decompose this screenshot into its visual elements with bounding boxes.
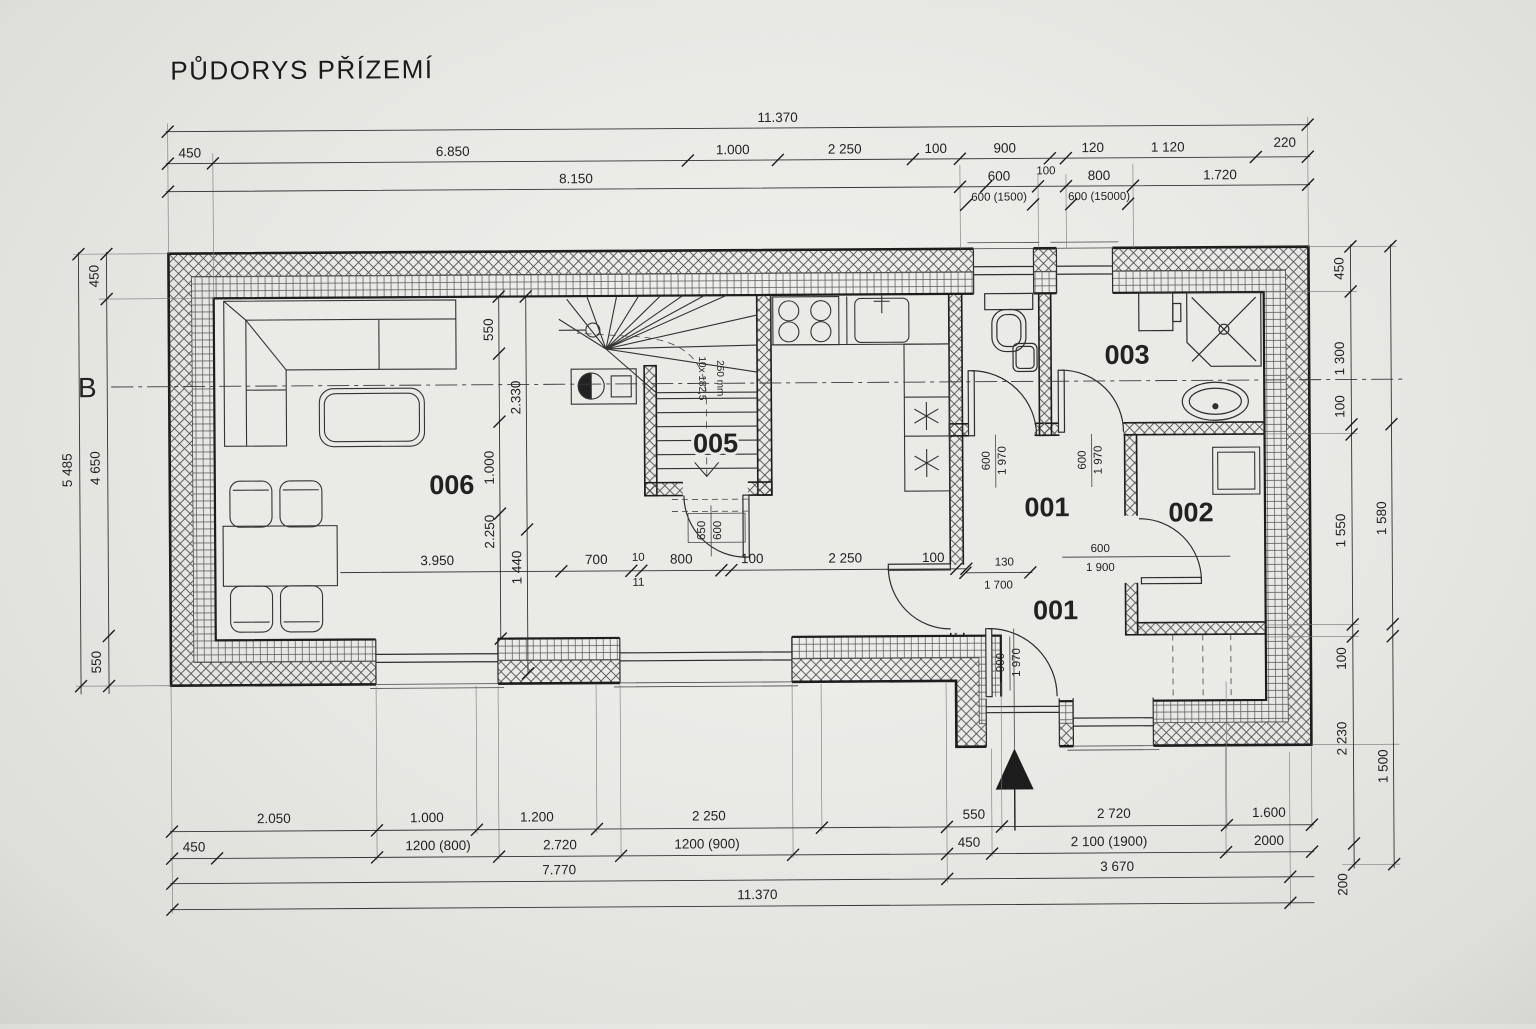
room-label-hall-lower: 001 — [1033, 595, 1078, 625]
window-north-1 — [967, 242, 1039, 295]
wall-wc-bath — [1039, 293, 1052, 435]
wall-stair-left — [644, 366, 657, 496]
dim: 600 — [712, 521, 724, 540]
dim: 900 — [995, 653, 1007, 672]
scanned-drawing-sheet: PŮDORYS PŘÍZEMÍ — [0, 0, 1536, 1029]
bottom-dimensions: 2.050 1.000 1.200 2 250 550 2 720 1.600 … — [166, 805, 1319, 916]
dim: 100 — [1332, 395, 1347, 418]
dim: 1200 (900) — [674, 836, 739, 851]
dim: 1 970 — [1093, 446, 1105, 475]
dim: 600 (1500) — [971, 191, 1027, 203]
dim: 3.950 — [420, 553, 454, 568]
dim: 700 — [585, 552, 608, 567]
dim: 220 — [1273, 135, 1296, 150]
dim: 1 580 — [1374, 501, 1389, 535]
dim: 1 550 — [1333, 514, 1348, 548]
dim: 2.720 — [543, 837, 577, 852]
page-title: PŮDORYS PŘÍZEMÍ — [170, 53, 433, 86]
dim: 1.000 — [482, 451, 497, 485]
dim: 2.250 — [482, 515, 497, 549]
dim: 800 — [670, 551, 693, 566]
room-label-bedroom: 002 — [1168, 497, 1213, 527]
dim: 600 — [981, 451, 993, 470]
stairs-door-opening — [683, 480, 748, 497]
dim: 2 250 — [828, 141, 862, 156]
wall-bedroom-bottom — [1138, 622, 1266, 635]
dim: 1 700 — [984, 580, 1013, 592]
dim: 8.150 — [559, 171, 593, 186]
entry-door-opening — [986, 696, 1059, 748]
dim: 6.850 — [436, 144, 470, 159]
dim: 450 — [183, 839, 206, 854]
dim: 130 — [995, 556, 1014, 568]
dim: 1.200 — [520, 809, 554, 824]
dim: 1 500 — [1375, 749, 1390, 783]
dim: 1 120 — [1151, 139, 1185, 154]
window-entry — [1067, 696, 1159, 751]
dim: 2 230 — [1334, 722, 1349, 756]
dim: 2.050 — [257, 811, 291, 826]
dim: 600 — [1091, 543, 1110, 555]
dim: 2 100 (1900) — [1071, 834, 1148, 849]
dim: 4 650 — [88, 451, 103, 485]
wall-stair-right — [757, 295, 772, 495]
dim: 450 — [958, 835, 981, 850]
dim: 100 — [1334, 647, 1349, 670]
floor-plan: PŮDORYS PŘÍZEMÍ — [0, 0, 1536, 1029]
dim: 1.000 — [716, 142, 750, 157]
dim: 200 — [1335, 873, 1350, 896]
left-dimensions: 450 4 650 550 5 485 — [58, 248, 115, 694]
section-mark: B — [78, 372, 97, 403]
room-label-stairs: 005 — [693, 428, 738, 458]
dim: 3 670 — [1100, 859, 1134, 874]
dim: 600 (15000) — [1068, 191, 1130, 203]
dim: 1 300 — [1332, 342, 1347, 376]
dim: 100 — [741, 551, 764, 566]
dim: 1 900 — [1086, 562, 1115, 574]
dim: 2 720 — [1097, 806, 1131, 821]
dim: 1 970 — [997, 446, 1009, 475]
dim: 100 — [1036, 165, 1055, 177]
dim: 600 — [988, 169, 1011, 184]
room-label-hall-upper: 001 — [1024, 492, 1069, 522]
wc-door-opening — [969, 421, 1034, 437]
dim: 100 — [922, 550, 945, 565]
window-south-2 — [614, 630, 798, 687]
dim: 1.600 — [1252, 805, 1286, 820]
dim: 2 250 — [828, 550, 862, 565]
dim: 1.720 — [1203, 167, 1237, 182]
dim: 1 970 — [1011, 648, 1023, 677]
dim: 11 — [632, 577, 644, 589]
dim: 1 440 — [509, 551, 524, 585]
dim: 2.330 — [508, 381, 523, 415]
dim: 5 485 — [60, 453, 75, 487]
dim: 120 — [1081, 140, 1104, 155]
right-dimensions: 450 1 300 100 1 550 100 2 230 200 1 580 … — [1331, 240, 1400, 896]
window-south-1 — [370, 632, 504, 689]
dim: 2 250 — [692, 808, 726, 823]
dim: 2000 — [1254, 833, 1284, 848]
dim: 550 — [963, 807, 986, 822]
bedroom-door-opening — [1123, 516, 1139, 583]
dim: 800 — [1088, 168, 1111, 183]
top-dimensions: 11.370 450 6.850 1.000 2 250 100 900 120… — [162, 107, 1315, 216]
room-label-living: 006 — [429, 470, 474, 500]
dim: 10 — [632, 552, 645, 564]
dim: 450 — [1331, 257, 1346, 280]
dim: 900 — [993, 140, 1016, 155]
dim: 650 — [696, 521, 708, 540]
dim: 600 — [1077, 450, 1089, 469]
dim: 1200 (800) — [405, 838, 470, 853]
dim: 11.370 — [737, 887, 777, 902]
window-north-2 — [1050, 242, 1118, 295]
stairs-note-line1: 10x 182,5 — [696, 356, 707, 400]
dim: 450 — [86, 265, 101, 288]
dim: 100 — [924, 141, 947, 156]
dim: 450 — [178, 145, 201, 160]
room-label-bathroom: 003 — [1104, 340, 1149, 370]
dim-top-total: 11.370 — [757, 110, 797, 125]
stairs-note-line2: 250 mm — [714, 360, 725, 396]
dim: 550 — [481, 318, 496, 341]
dim: 7.770 — [542, 862, 576, 877]
dim: 550 — [89, 651, 104, 674]
dim: 1.000 — [410, 810, 444, 825]
